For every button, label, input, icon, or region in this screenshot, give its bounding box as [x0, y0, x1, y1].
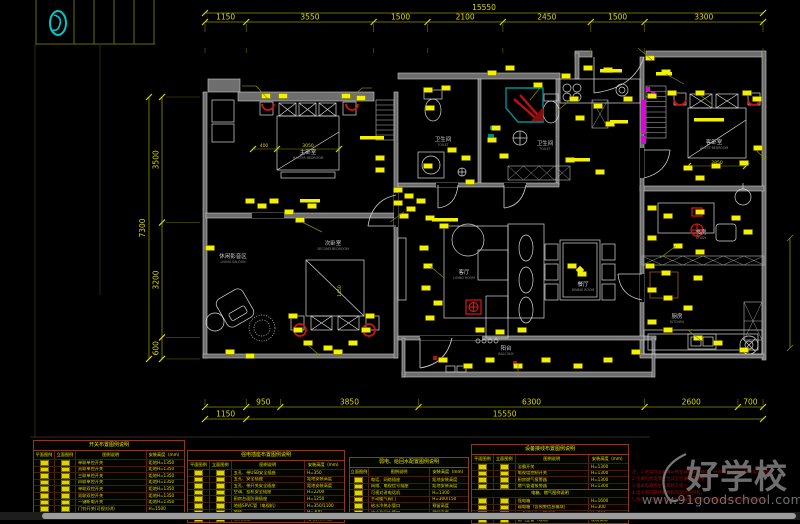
legend-desc: 网络、电视信号插座: [369, 484, 430, 490]
legend-height: 距地H=1350: [147, 486, 185, 492]
dimension-label: 1150: [216, 13, 235, 22]
annotation-chip: [648, 94, 657, 99]
room-label-en: MASTER BEDROOM: [293, 156, 324, 160]
annotation-chip: [696, 210, 705, 215]
legend-row: 单联双控开关距地H=1350: [34, 485, 184, 492]
legend-row: 电话、网络插座距地安装高度: [350, 476, 468, 483]
legend-desc: 地插SPVC管（电视机）: [232, 503, 305, 509]
legend-row: 一键断电开关距地H=1350: [34, 499, 184, 506]
legend-table-title: 强电插座布置图例说明: [188, 451, 344, 461]
annotation-chip: [570, 97, 579, 102]
legend-desc: 厨房台面防溅插座: [232, 496, 305, 502]
legend-height: 距地H=1350: [147, 500, 185, 506]
legend-desc: 可视对讲电话机: [369, 490, 430, 496]
annotation-chip: [258, 204, 267, 209]
annotation-chip: [308, 204, 317, 209]
legend-symbol-icon: [34, 493, 55, 499]
annotation-chip: [740, 161, 749, 166]
legend-desc: 五孔、带开关安全插座: [232, 483, 305, 489]
legend-desc: 手动暖气阀门: [369, 497, 430, 503]
annotation-chip: [696, 250, 705, 255]
legend-symbol-icon: [494, 464, 516, 470]
room-label: 休闲影音区: [219, 252, 247, 260]
annotation-chip: [732, 216, 741, 221]
room-label: 厨房: [671, 312, 683, 320]
legend-height: 距地H=1350: [147, 460, 185, 466]
legend-table-title: 设备接线布置图例说明: [472, 445, 628, 455]
legend-row: 双联单控开关距地H=1350: [34, 466, 184, 473]
legend-symbol-icon: [188, 470, 210, 476]
legend-desc: 电话、网络插座: [369, 477, 430, 483]
legend-height: H=1250: [305, 496, 344, 502]
legend-row: 网络、电视信号插座距地安装高度: [350, 483, 468, 490]
legend-height: 距地安装高度: [430, 484, 468, 490]
room-label-en: LIVING ROOM: [453, 276, 475, 280]
legend-header: 图例说明: [516, 455, 589, 463]
legend-symbol-icon: [210, 477, 232, 483]
annotation-chip: [584, 66, 593, 71]
legend-table: 弱电、给回水配置图例说明立面图例图例说明安装高度（mm）电话、网络插座距地安装高…: [349, 457, 469, 517]
legend-header: 安装高度（mm）: [305, 461, 344, 469]
legend-symbol-icon: [472, 464, 494, 470]
legend-height: H=300/150: [430, 497, 468, 503]
light-bar-icon: [694, 118, 724, 122]
legend-table-title: 弱电、给回水配置图例说明: [350, 458, 468, 468]
legend-table-title: 开关布置图例说明: [34, 441, 184, 451]
annotation-chip: [349, 341, 358, 346]
light-bar-icon: [610, 120, 628, 124]
annotation-chip: [422, 286, 431, 291]
legend-symbol-icon: [55, 486, 76, 492]
bath1-door: [438, 185, 458, 208]
annotation-chip: [488, 138, 497, 143]
legend-header: 平面图例: [188, 461, 210, 469]
legend-symbol-icon: [34, 506, 55, 512]
legend-height: H=300: [589, 505, 628, 511]
legend-row: 双联双控开关距地H=1350: [34, 492, 184, 499]
room-label-en: BALCONY: [498, 352, 513, 356]
annotation-chip: [648, 206, 657, 211]
room-label: 阳台: [500, 344, 512, 352]
annotation-chip: [740, 348, 749, 353]
annotation-chip: [426, 106, 435, 111]
tv-cabinet: [398, 238, 406, 300]
legend-symbol-icon: [210, 496, 232, 502]
legend-symbol-icon: [34, 460, 55, 466]
annotation-chip: [394, 201, 403, 206]
legend-height: 距地安装高度: [305, 483, 344, 489]
legend-height: H=1300: [589, 471, 628, 477]
dimension-label: 600: [152, 341, 161, 356]
legend-row: 厨房燃气报警器H=1300: [472, 476, 628, 483]
legend-symbol-icon: [210, 503, 232, 509]
legend-row: 地插SPVC管（电视机）H=350/1100: [188, 502, 344, 509]
annotation-chip: [394, 188, 403, 193]
dimension-label: 1150: [216, 410, 235, 419]
annotation-chip: [518, 328, 527, 333]
room-label-en: LIVING SALOON: [220, 260, 246, 264]
room-label-en: STUDY: [696, 236, 707, 240]
dimension-label: 2450: [537, 13, 556, 22]
annotation-chip: [664, 328, 673, 333]
legend-desc: 双联双控开关: [76, 493, 147, 499]
room-label: 餐厅: [577, 280, 589, 288]
legend-height: 距地安装高度: [305, 477, 344, 483]
room-label-en: KITCHEN: [670, 320, 684, 324]
annotation-chip: [662, 271, 671, 276]
legend-row: 可视对讲电话机H=1300: [350, 489, 468, 496]
dimension-label: 6300: [522, 398, 541, 407]
annotation-chip: [576, 116, 585, 121]
room-label-en: DINING ROOM: [572, 288, 595, 292]
annotation-chip: [604, 358, 613, 363]
dimension-label: 400: [260, 143, 269, 149]
legend-row: 电视墙控制开关H=1300: [472, 470, 628, 477]
stamp-icon: [50, 11, 66, 35]
red-symbols: [262, 99, 760, 365]
legend-symbol-icon: [210, 483, 232, 489]
light-bar-icon: [600, 69, 622, 73]
legend-height: H=1300: [589, 477, 628, 483]
legend-desc: 双联单控开关: [76, 467, 147, 473]
legend-header: 立面图例: [210, 461, 232, 469]
annotation-chip: [270, 199, 279, 204]
legend-desc: 单联单控开关: [76, 460, 147, 466]
annotation-chip: [376, 168, 385, 173]
dimension-label: 3200: [152, 270, 161, 289]
annotation-chip: [448, 148, 457, 153]
dimension-label: 3850: [340, 398, 359, 407]
legend-symbol-icon: [34, 500, 55, 506]
dimension-label: 3050: [302, 143, 314, 149]
title-block: [36, 0, 155, 44]
legend-row: 浴霸开关H=1300: [472, 463, 628, 470]
legend-row: 给水冷热水管口预留高度: [350, 502, 468, 509]
legend-symbol-icon: [210, 470, 232, 476]
legend-symbol-icon: [34, 480, 55, 486]
light-bar-icon: [656, 72, 672, 76]
legend-symbol-icon: [55, 493, 76, 499]
dimension-label: 2100: [456, 13, 475, 22]
dimension-label: 7300: [138, 218, 147, 237]
annotation-chip: [357, 96, 366, 101]
legend-row: 四联单控开关距地H=1350: [34, 479, 184, 486]
annotation-chip: [366, 314, 375, 319]
annotation-chip: [285, 210, 294, 215]
annotation-chip: [684, 166, 693, 171]
room-label: 次卧室: [325, 239, 342, 247]
legend-header: 图例说明: [232, 461, 305, 469]
legend-header: 立面图例: [494, 455, 516, 463]
legend-symbol-icon: [472, 477, 494, 483]
annotation-chip: [574, 364, 583, 369]
annotation-chip: [486, 358, 495, 363]
annotation-chip: [596, 170, 605, 175]
annotation-chip: [648, 320, 657, 325]
annotation-chip: [246, 354, 255, 359]
light-bar-icon: [300, 199, 320, 203]
master-cabinet: [212, 124, 234, 142]
legend-symbol-icon: [55, 473, 76, 479]
annotation-chip: [424, 164, 433, 169]
annotation-chip: [648, 288, 657, 293]
legend-symbol-icon: [494, 505, 516, 511]
annotation-chip: [743, 91, 752, 96]
annotation-chip: [648, 236, 657, 241]
annotation-chip: [496, 330, 505, 335]
legend-symbol-icon: [55, 467, 76, 473]
legend-header: 安装高度（mm）: [430, 468, 468, 476]
annotation-chip: [424, 88, 433, 93]
dimension-label: 15550: [493, 410, 517, 419]
annotation-chip: [407, 207, 416, 212]
annotation-chip: [500, 154, 509, 159]
second-bed: [291, 260, 379, 330]
legend-symbol-icon: [34, 486, 55, 492]
legend-height: H=1600: [589, 498, 628, 504]
room-label: 卫生间: [537, 139, 554, 147]
room-label: 客卧室: [706, 138, 723, 146]
legend-symbol-icon: [55, 480, 76, 486]
room-label: 书房: [695, 228, 707, 236]
legend-height: H=2200: [305, 490, 344, 496]
annotation-chip: [668, 91, 677, 96]
legend-height: 预留高度: [430, 503, 468, 509]
side-table: [206, 313, 224, 331]
room-label: 客厅: [458, 268, 470, 276]
legend-symbol-icon: [350, 490, 369, 496]
legend-desc: 单联双控开关: [76, 486, 147, 492]
annotation-chip: [334, 350, 343, 355]
legend-row: 燃气管道报警器H=1300: [472, 483, 628, 490]
legend-desc: 厨房燃气报警器: [516, 477, 589, 483]
legend-symbol-icon: [494, 498, 516, 504]
annotation-chip: [754, 146, 763, 151]
legend-desc: 一键断电开关: [76, 500, 147, 506]
annotation-chip: [664, 214, 673, 219]
legend-desc: 电视墙控制开关: [516, 471, 589, 477]
legend-header: 安装高度（mm）: [147, 451, 185, 459]
legend-row: 五孔、安全插座距地安装高度: [188, 476, 344, 483]
legend-height: H=350/1100: [305, 503, 344, 509]
legend-desc: 五孔、带USB安全插座: [232, 470, 305, 476]
annotation-chip: [664, 296, 673, 301]
guestroom-door: [644, 150, 670, 178]
legend-symbol-icon: [188, 477, 210, 483]
annotation-chip: [492, 126, 501, 131]
legend-header: 平面图例: [34, 451, 55, 459]
dimension-label: 3300: [694, 13, 713, 22]
legend-row: 厨房台面防溅插座H=1250: [188, 495, 344, 502]
watermark-brand: 好学校: [686, 450, 788, 498]
legend-header: 平面图例: [472, 455, 494, 463]
legend-symbol-icon: [188, 490, 210, 496]
annotation-chip: [426, 316, 435, 321]
sofa-set: [398, 224, 544, 338]
annotation-chip: [632, 350, 641, 355]
legend-symbol-icon: [55, 460, 76, 466]
annotation-chip: [226, 350, 235, 355]
annotation-chip: [624, 97, 633, 102]
legend-row: 弱电箱（含预警信息模块）H=300: [472, 504, 628, 511]
annotation-chip: [462, 156, 471, 161]
annotation-chip: [440, 224, 449, 229]
plant: [254, 320, 270, 336]
legend-symbol-icon: [472, 505, 494, 511]
master-cabinet: [212, 100, 234, 122]
room-label-en: SECOND BEDROOM: [317, 247, 349, 251]
annotation-chip: [439, 358, 448, 363]
wall-lamp-icon: [674, 99, 686, 105]
annotation-chip: [712, 164, 721, 169]
dimension-label: 1500: [391, 13, 410, 22]
plant: [249, 315, 275, 341]
annotation-chip: [488, 71, 497, 76]
dimension-label: 950: [256, 398, 271, 407]
legend-height: 距地安装高度: [430, 477, 468, 483]
watermark-url: www.91goodschool.com: [642, 492, 800, 507]
legend-symbol-icon: [188, 483, 210, 489]
bath2-door: [504, 185, 526, 208]
legend-header: 图例说明: [369, 468, 430, 476]
annotation-chip: [753, 97, 762, 102]
annotation-chip: [694, 276, 703, 281]
legend-row: 强电箱H=1600: [472, 497, 628, 504]
legend-symbol-icon: [350, 484, 369, 490]
annotation-chip: [506, 66, 515, 71]
frame-lines: [35, 44, 100, 437]
wall-openings: [252, 148, 644, 340]
room-label-en: TOILET: [538, 147, 550, 151]
annotation-chip: [568, 264, 577, 269]
legend-symbol-icon: [188, 503, 210, 509]
room-label: 卫生间: [435, 135, 452, 143]
legend-symbol-icon: [210, 490, 232, 496]
dimension-label: 15550: [472, 3, 496, 12]
horizontal-scrollbar-thumb[interactable]: [42, 513, 796, 519]
balcony-door: [420, 338, 452, 368]
dimension-label: 1450: [337, 285, 343, 297]
annotation-chip: [476, 328, 485, 333]
legend-header: 立面图例: [350, 468, 369, 476]
dimension-label: 2600: [682, 398, 701, 407]
right-edge-dim: [787, 235, 793, 351]
legend-row: 单联单控开关距地H=1350: [34, 459, 184, 466]
annotation-chip: [279, 94, 288, 99]
annotation-chip: [304, 341, 313, 346]
annotation-chip: [342, 94, 351, 99]
legend-symbol-icon: [472, 484, 494, 490]
annotation-chip: [464, 364, 473, 369]
annotation-chip: [684, 306, 693, 311]
annotation-chip: [417, 199, 426, 204]
legend-height: 距地H=1350: [147, 480, 185, 486]
legend-row: 三联单控开关距地H=1350: [34, 472, 184, 479]
annotation-chip: [420, 246, 429, 251]
legend-symbol-icon: [55, 500, 76, 506]
legend-desc: 五孔、安全插座: [232, 477, 305, 483]
legend-height: 距地H=1350: [147, 493, 185, 499]
legend-desc: 强电箱: [516, 498, 589, 504]
legend-height: H=350: [305, 470, 344, 476]
annotation-chip: [696, 91, 705, 96]
dimension-label: 3500: [152, 150, 161, 169]
legend-desc: 弱电箱（含预警信息模块）: [516, 505, 589, 511]
entry-door: [594, 57, 644, 93]
legend-row: 门铃开关(可视对讲)H=1500: [34, 505, 184, 512]
annotation-chip: [206, 246, 215, 251]
legend-subheader: 电箱、燃气图例说明: [472, 489, 628, 497]
annotation-chip: [696, 176, 705, 181]
legend-desc: 给水冷热水管口: [369, 503, 430, 509]
legend-symbol-icon: [350, 497, 369, 503]
legend-symbol-icon: [350, 477, 369, 483]
legend-table: 开关布置图例说明平面图例立面图例图例说明安装高度（mm）单联单控开关距地H=13…: [33, 440, 185, 519]
light-bar-icon: [572, 158, 590, 162]
annotation-chip: [534, 83, 543, 88]
annotation-chip: [562, 74, 571, 79]
annotation-chip: [744, 230, 753, 235]
legend-desc: 四联单控开关: [76, 480, 147, 486]
legend-height: 距地H=1350: [147, 473, 185, 479]
annotation-chip: [362, 328, 371, 333]
annotation-chip: [466, 180, 475, 185]
legend-symbol-icon: [472, 498, 494, 504]
annotation-chip: [324, 346, 333, 351]
legend-header: 立面图例: [55, 451, 76, 459]
legend-symbol-icon: [494, 484, 516, 490]
wall-lamp-icon: [262, 104, 274, 110]
legend-desc: 燃气管道报警器: [516, 484, 589, 490]
annotation-chip: [296, 218, 305, 223]
legend-symbol-icon: [34, 467, 55, 473]
annotation-chip: [434, 301, 443, 306]
legend-height: H=1300: [589, 484, 628, 490]
kitchen-cabinet: [650, 272, 678, 298]
legend-header: 安装高度（mm）: [589, 455, 628, 463]
legend-row: 五孔、带USB安全插座H=350: [188, 469, 344, 476]
annotation-chip: [289, 314, 298, 319]
annotation-chip: [442, 86, 451, 91]
dimension-label: 3550: [300, 13, 319, 22]
legend-symbol-icon: [350, 503, 369, 509]
legend-height: H=1300: [430, 490, 468, 496]
legend-symbol-icon: [472, 471, 494, 477]
annotation-chip: [246, 199, 255, 204]
annotation-chip: [294, 328, 303, 333]
legend-height: H=1500: [147, 506, 185, 512]
master-bed: [260, 102, 356, 178]
annotation-chip: [714, 341, 723, 346]
annotation-chip: [542, 358, 551, 363]
legend-symbol-icon: [188, 496, 210, 502]
annotation-chip: [674, 244, 683, 249]
legend-row: 空调、挂机安全插座H=2200: [188, 489, 344, 496]
annotation-chip: [424, 264, 433, 269]
legend-row: 五孔、带开关安全插座距地安装高度: [188, 482, 344, 489]
annotation-chip: [646, 264, 655, 269]
light-bar-icon: [360, 136, 384, 140]
annotation-chip: [262, 94, 271, 99]
legend-row: 手动暖气阀门H=300/150: [350, 496, 468, 503]
room-label-en: GUEST BEDROOM: [700, 146, 729, 150]
dimension-strips: 1555011503550150021002450150033007300350…: [138, 3, 766, 422]
annotation-chip: [594, 104, 603, 109]
kitchen-door: [618, 274, 642, 300]
legend-symbol-icon: [494, 477, 516, 483]
annotation-chip: [376, 156, 385, 161]
annotation-chip: [405, 194, 414, 199]
